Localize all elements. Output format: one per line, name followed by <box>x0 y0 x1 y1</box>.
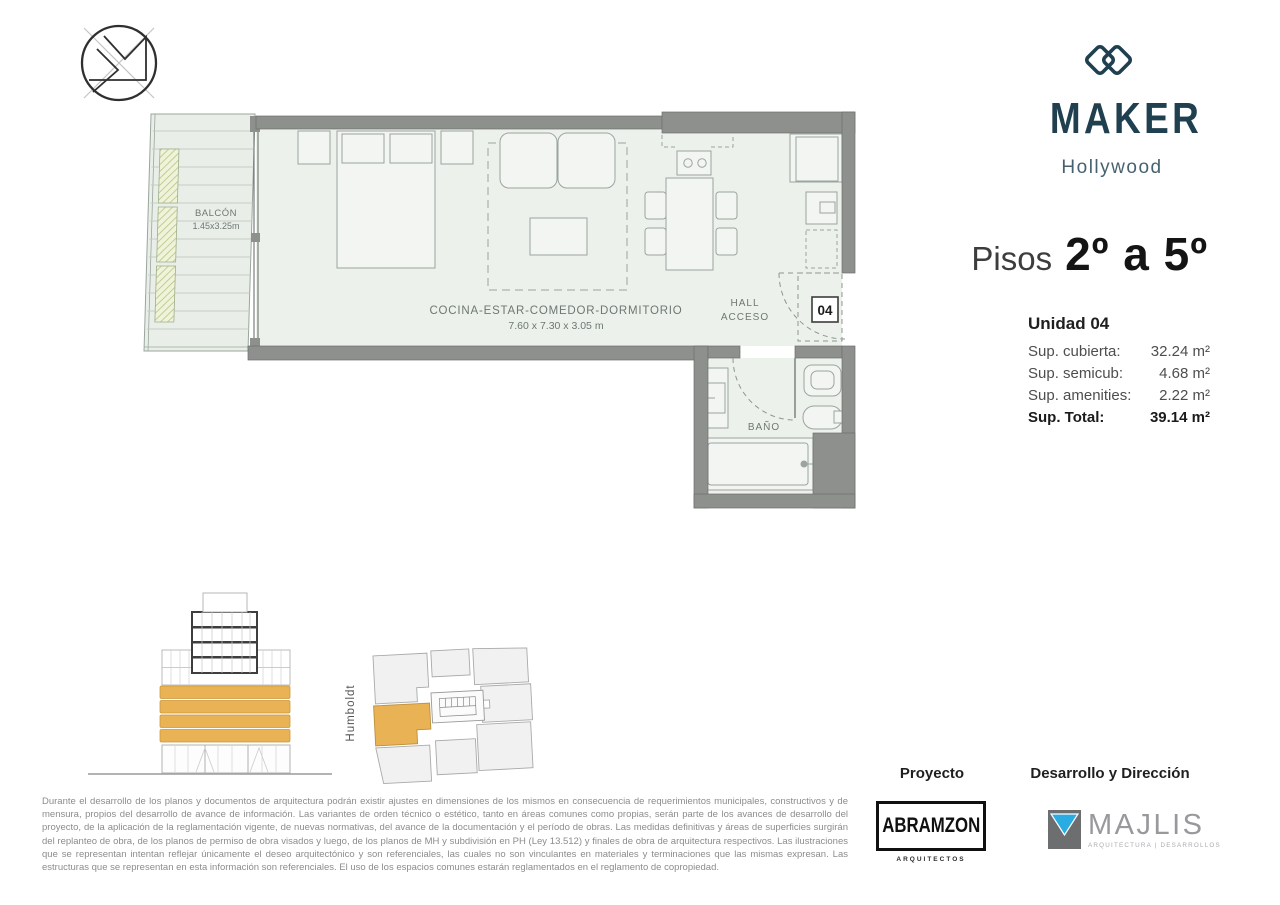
balcony-label: BALCÓN <box>195 208 237 219</box>
majlis-text: MAJLIS ARQUITECTURA | DESARROLLOS <box>1088 810 1221 849</box>
keyplan-unit <box>473 646 529 685</box>
keyplan-unit <box>373 653 429 704</box>
legal-disclaimer: Durante el desarrollo de los planos y do… <box>42 795 848 874</box>
coffee-table <box>530 218 587 255</box>
unit-summary: Unidad 04 Sup. cubierta: 32.24 m² Sup. s… <box>1028 314 1210 429</box>
hall-label-2: ACCESO <box>721 312 769 323</box>
unit-title: Unidad 04 <box>1028 314 1210 334</box>
chair <box>645 192 666 219</box>
floors-range: 2º a 5º <box>1065 227 1208 281</box>
pillow-right <box>390 134 432 163</box>
surface-row: Sup. cubierta: 32.24 m² <box>1028 341 1210 363</box>
highlight-floors <box>160 686 290 742</box>
chair <box>645 228 666 255</box>
brand-location: Hollywood <box>1038 157 1186 179</box>
abramzon-logo: ABRAMZON <box>876 801 986 851</box>
keyplan-stub <box>431 649 470 677</box>
chair <box>716 228 737 255</box>
brand-name: MAKER <box>1050 94 1174 144</box>
brochure-page: 04 BALCÓN 1.45x3.25m COCINA-ESTAR-COMEDO… <box>0 0 1280 905</box>
surface-total-row: Sup. Total: 39.14 m² <box>1028 407 1210 429</box>
surface-label: Sup. amenities: <box>1028 385 1131 407</box>
street-label: Humboldt <box>345 684 357 741</box>
balcony-dims: 1.45x3.25m <box>192 221 239 231</box>
kitchen-island <box>666 178 713 270</box>
surface-label: Sup. semicub: <box>1028 363 1123 385</box>
floor-plan: 04 BALCÓN 1.45x3.25m COCINA-ESTAR-COMEDO… <box>138 93 862 515</box>
hall-label-1: HALL <box>730 298 759 309</box>
storefront <box>162 745 290 773</box>
tower <box>192 612 257 673</box>
unit-number: 04 <box>817 303 833 318</box>
closet <box>790 134 842 182</box>
bath-label: BAÑO <box>748 420 780 433</box>
main-room-label: COCINA-ESTAR-COMEDOR-DORMITORIO <box>429 305 682 317</box>
wall-bath-left <box>694 346 708 508</box>
wall-bath-top-a <box>708 346 740 358</box>
sofa-seat-left <box>500 133 557 188</box>
maker-logo-icon <box>1076 40 1140 80</box>
keyplan-unit <box>376 745 432 784</box>
surface-value: 32.24 m² <box>1151 341 1210 363</box>
building-elevation <box>50 585 350 790</box>
wall-right <box>842 112 855 273</box>
abramzon-name: ABRAMZON <box>882 814 980 838</box>
wall-bath-top-b <box>795 346 842 358</box>
bathtub <box>703 438 813 490</box>
surface-label: Sup. cubierta: <box>1028 341 1121 363</box>
penthouse <box>203 593 247 612</box>
wall-bottom <box>248 346 708 360</box>
floors-heading: Pisos 2º a 5º <box>946 227 1208 281</box>
majlis-name: MAJLIS <box>1088 810 1221 842</box>
surface-total-label: Sup. Total: <box>1028 407 1104 429</box>
sofa-seat-right <box>558 133 615 188</box>
keyplan-unit <box>477 722 533 771</box>
toilet <box>804 365 841 396</box>
keyplan-unit <box>481 684 533 723</box>
floor-plate <box>371 646 536 784</box>
surface-row: Sup. semicub: 4.68 m² <box>1028 363 1210 385</box>
keyplan-unit <box>435 739 477 775</box>
majlis-subtitle: ARQUITECTURA | DESARROLLOS <box>1088 842 1221 849</box>
floors-prefix: Pisos <box>971 240 1052 278</box>
wall-top-left <box>256 116 662 129</box>
project-label: Proyecto <box>872 765 992 782</box>
pillow-left <box>342 134 384 163</box>
key-plan: Humboldt <box>335 628 550 793</box>
balcony-area <box>144 114 255 351</box>
abramzon-subtitle: ARQUITECTOS <box>876 856 986 863</box>
surface-row: Sup. amenities: 2.22 m² <box>1028 385 1210 407</box>
surface-total-value: 39.14 m² <box>1150 407 1210 429</box>
surface-value: 4.68 m² <box>1159 363 1210 385</box>
chair <box>716 192 737 219</box>
keyplan-unit-highlighted <box>374 703 432 746</box>
developer-label: Desarrollo y Dirección <box>1010 765 1210 782</box>
wall-bath-bottom <box>694 494 855 508</box>
washer <box>806 192 837 224</box>
surface-value: 2.22 m² <box>1159 385 1210 407</box>
nightstand-right <box>441 131 473 164</box>
main-room-dims: 7.60 x 7.30 x 3.05 m <box>508 320 603 332</box>
majlis-logo-icon <box>1048 810 1081 849</box>
wall-top-right <box>662 112 855 133</box>
unit-number-tag: 04 <box>812 297 838 322</box>
majlis-logo: MAJLIS ARQUITECTURA | DESARROLLOS <box>1048 810 1221 849</box>
nightstand-left <box>298 131 330 164</box>
